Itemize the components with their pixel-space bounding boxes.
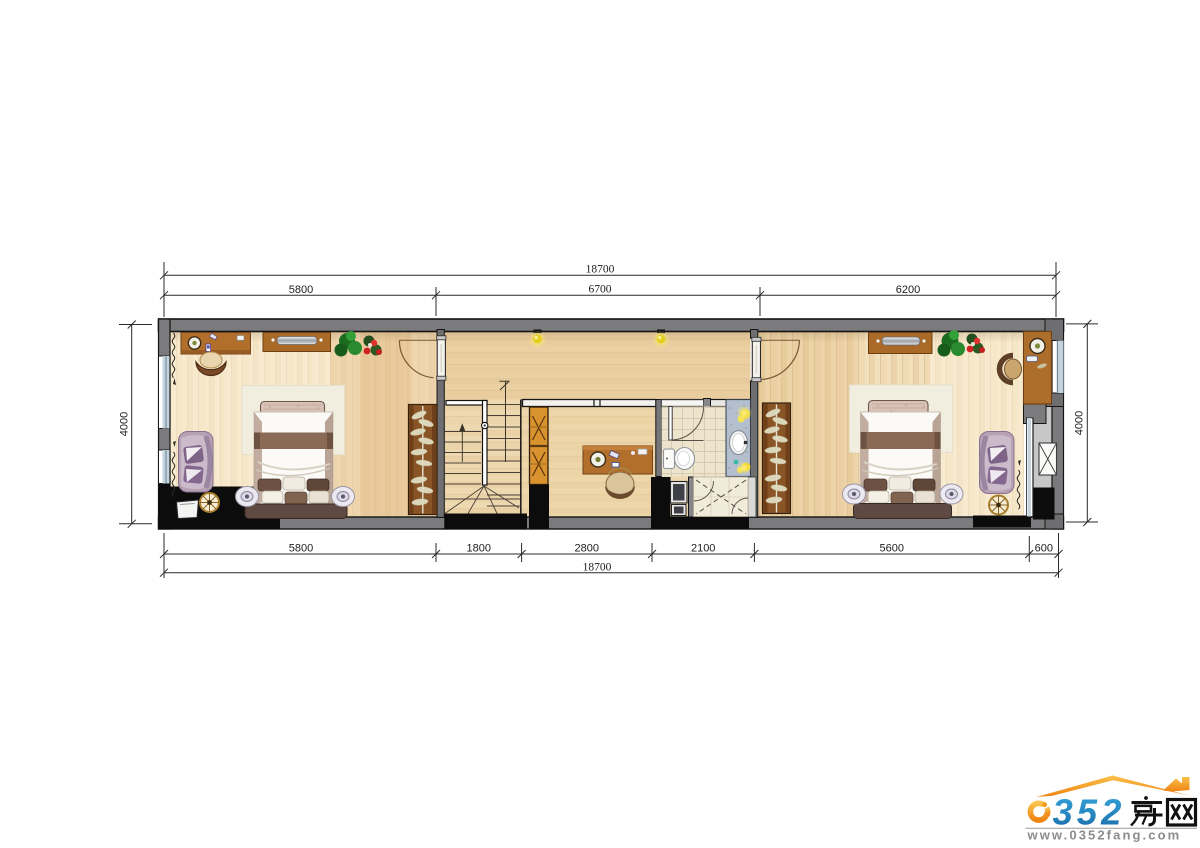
svg-text:4000: 4000	[1074, 411, 1086, 435]
svg-text:5600: 5600	[880, 543, 904, 555]
svg-text:6700: 6700	[589, 284, 612, 296]
svg-text:5800: 5800	[289, 284, 313, 296]
svg-text:600: 600	[1035, 543, 1053, 555]
svg-text:5800: 5800	[289, 543, 313, 555]
svg-text:2800: 2800	[575, 543, 599, 555]
svg-text:1800: 1800	[467, 543, 491, 555]
svg-text:www.0352fang.com: www.0352fang.com	[1027, 828, 1182, 843]
svg-text:4000: 4000	[119, 412, 131, 436]
svg-text:18700: 18700	[586, 264, 615, 276]
svg-text:2100: 2100	[691, 543, 715, 555]
svg-text:6200: 6200	[896, 284, 920, 296]
svg-text:18700: 18700	[583, 561, 612, 573]
svg-text:352: 352	[1053, 792, 1126, 833]
